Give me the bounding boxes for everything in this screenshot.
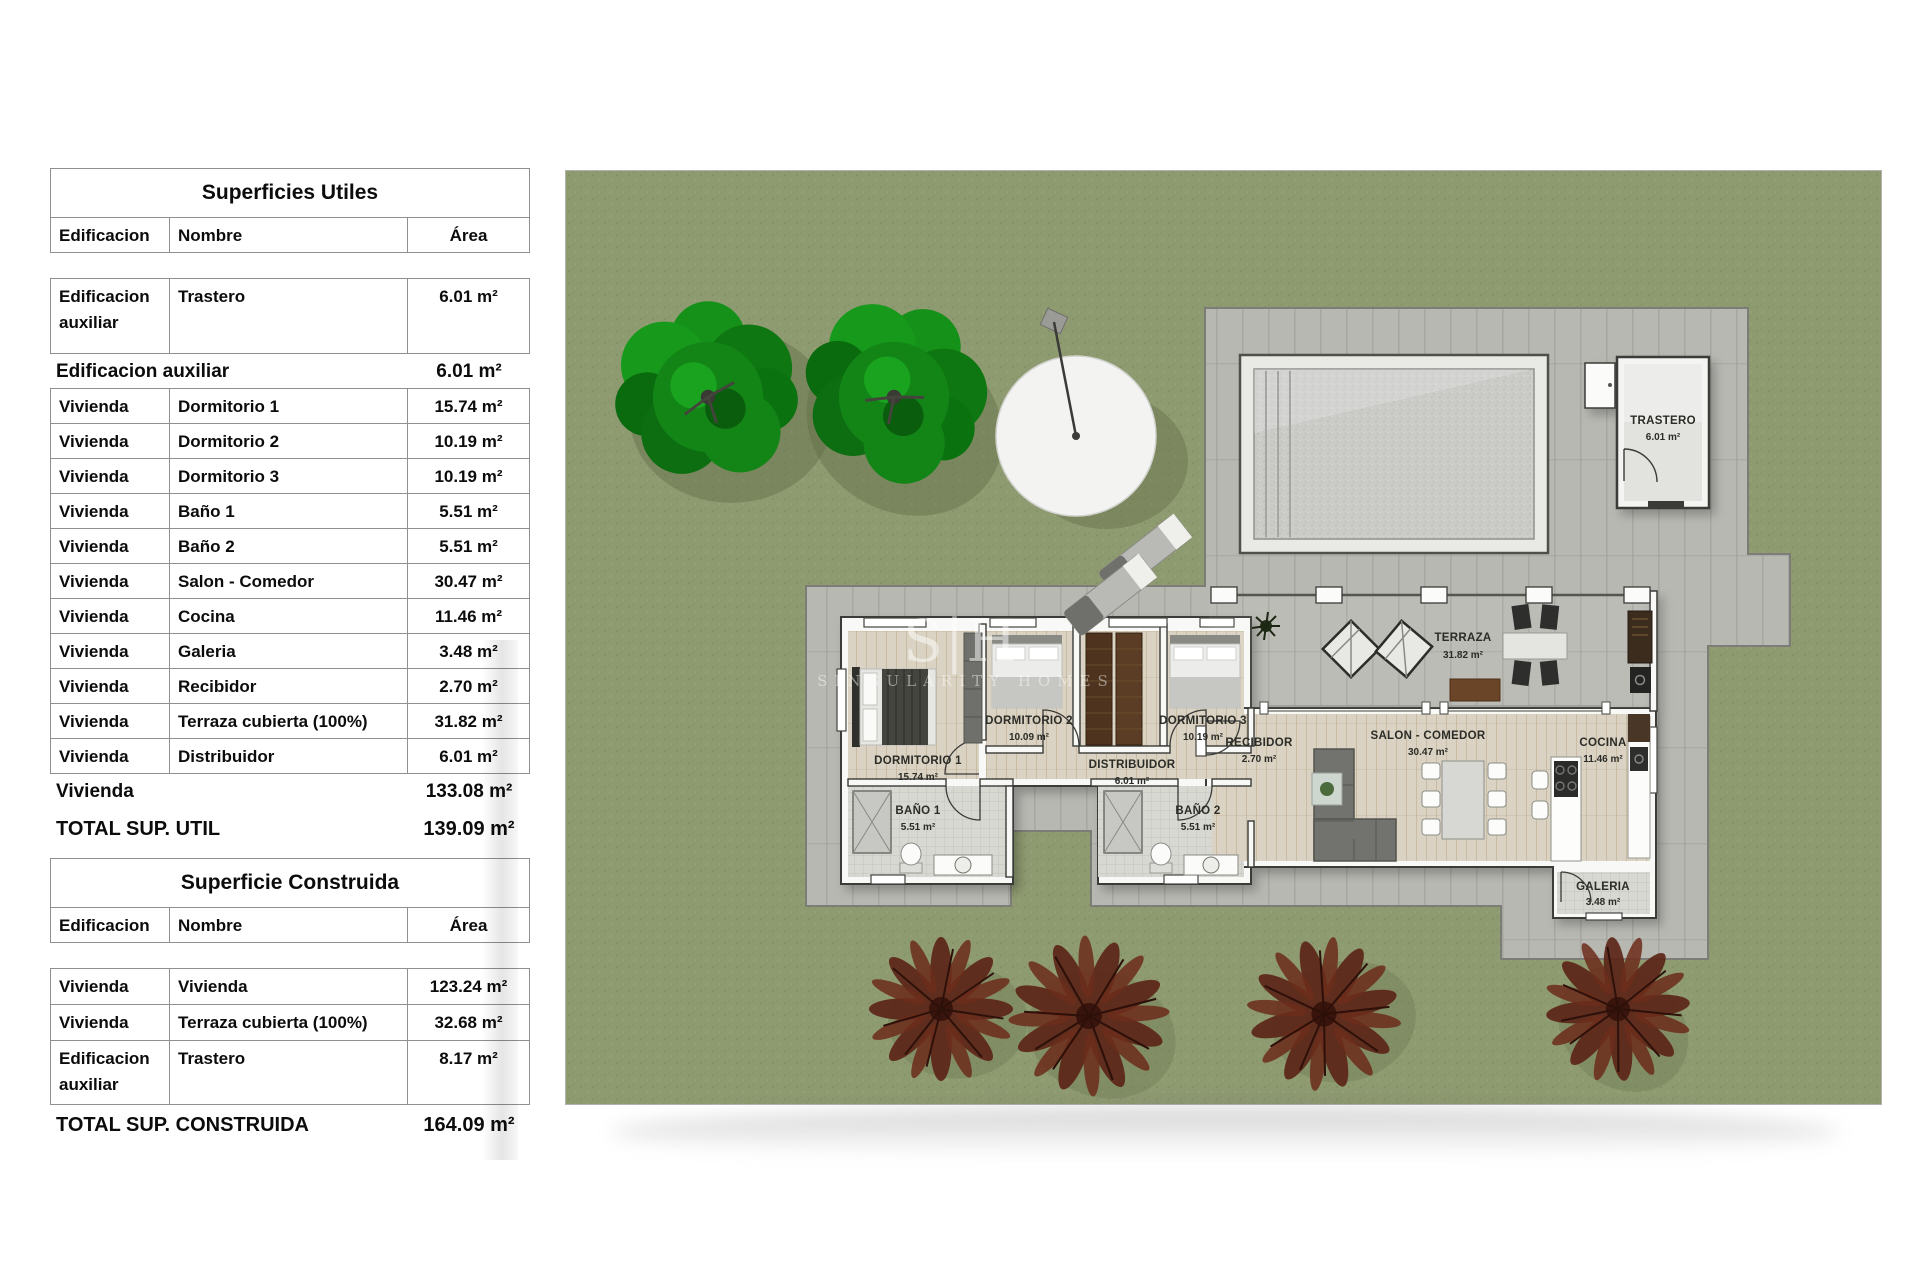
room-area: 6.01 m² [1115, 776, 1150, 787]
table-spacer [50, 943, 530, 969]
room-area: 5.51 m² [1181, 822, 1216, 833]
subtotal-label: Edificacion auxiliar [50, 361, 229, 383]
cell-edificacion: Edificacion auxiliar [51, 1041, 169, 1104]
cell-edificacion: Vivienda [51, 389, 169, 423]
table-superficies-utiles: Superficies Utiles Edificacion Nombre Ár… [50, 168, 530, 849]
room-name: DORMITORIO 3 [1159, 715, 1247, 727]
brochure-page: Superficies Utiles Edificacion Nombre Ár… [0, 0, 1920, 1280]
room-name: BAÑO 2 [1175, 804, 1220, 817]
room-area: 3.48 m² [1586, 897, 1621, 908]
cell-edificacion: Vivienda [51, 424, 169, 458]
cell-edificacion: Vivienda [51, 599, 169, 633]
table-row: Vivienda Vivienda 123.24 m² [50, 968, 530, 1005]
floor-plan-render: TRASTERO 6.01 m² [565, 170, 1882, 1105]
table-row: Vivienda Recibidor 2.70 m² [50, 668, 530, 704]
outdoor-kitchen [1628, 611, 1652, 693]
cell-nombre: Vivienda [169, 969, 407, 1004]
cell-nombre: Distribuidor [169, 739, 407, 773]
room-area: 11.46 m² [1583, 754, 1623, 765]
cell-edificacion: Vivienda [51, 969, 169, 1004]
table-row: Vivienda Dormitorio 3 10.19 m² [50, 458, 530, 494]
cell-area: 30.47 m² [407, 564, 529, 598]
total-row: TOTAL SUP. UTIL 139.09 m² [50, 809, 530, 849]
table-row: Vivienda Terraza cubierta (100%) 31.82 m… [50, 703, 530, 739]
cell-nombre: Trastero [169, 1041, 407, 1104]
cell-nombre: Dormitorio 1 [169, 389, 407, 423]
table-header-row: Edificacion Nombre Área [50, 217, 530, 253]
table-title: Superficies Utiles [50, 168, 530, 218]
cell-area: 10.19 m² [407, 459, 529, 493]
subtotal-row: Edificacion auxiliar 6.01 m² [50, 354, 530, 389]
room-area: 5.51 m² [901, 822, 936, 833]
room-name: SALON - COMEDOR [1370, 730, 1485, 742]
cell-edificacion: Edificacion auxiliar [51, 279, 169, 353]
cell-edificacion: Vivienda [51, 459, 169, 493]
col-header-nombre: Nombre [169, 908, 407, 942]
col-header-edificacion: Edificacion [51, 218, 169, 252]
cell-edificacion: Vivienda [51, 669, 169, 703]
table-row: Vivienda Baño 2 5.51 m² [50, 528, 530, 564]
room-area: 31.82 m² [1443, 650, 1484, 661]
col-header-nombre: Nombre [169, 218, 407, 252]
cell-nombre: Terraza cubierta (100%) [169, 1005, 407, 1040]
room-name: GALERIA [1576, 881, 1630, 893]
table-row: Vivienda Dormitorio 2 10.19 m² [50, 423, 530, 459]
outdoor-rug [1450, 679, 1500, 701]
room-area: 30.47 m² [1408, 747, 1449, 758]
table-row: Vivienda Baño 1 5.51 m² [50, 493, 530, 529]
cell-edificacion: Vivienda [51, 634, 169, 668]
dormitorio3-furniture [1170, 635, 1240, 708]
cell-nombre: Recibidor [169, 669, 407, 703]
col-header-edificacion: Edificacion [51, 908, 169, 942]
total-label: TOTAL SUP. UTIL [50, 818, 220, 841]
watermark-logo: S|H [903, 607, 1019, 675]
cell-edificacion: Vivienda [51, 494, 169, 528]
plan-drop-shadow [610, 1106, 1840, 1158]
room-area: 2.70 m² [1242, 754, 1277, 765]
room-name: DISTRIBUIDOR [1089, 759, 1176, 771]
table-row: Vivienda Dormitorio 1 15.74 m² [50, 388, 530, 424]
cell-area: 5.51 m² [407, 494, 529, 528]
room-area: 10.19 m² [1183, 732, 1224, 743]
room-name: DORMITORIO 2 [985, 715, 1073, 727]
subtotal-area: 6.01 m² [408, 361, 530, 383]
table-superficie-construida: Superficie Construida Edificacion Nombre… [50, 858, 530, 1145]
room-name: COCINA [1579, 737, 1626, 749]
kitchen-counter [1628, 714, 1650, 858]
page-fold-shadow [482, 640, 518, 1160]
room-name: TERRAZA [1434, 632, 1491, 644]
subtotal-row: Vivienda 133.08 m² [50, 774, 530, 809]
room-name: RECIBIDOR [1225, 737, 1293, 749]
room-name: TRASTERO [1630, 415, 1696, 427]
table-spacer [50, 253, 530, 279]
cell-area: 10.19 m² [407, 424, 529, 458]
table-row: Vivienda Galeria 3.48 m² [50, 633, 530, 669]
room-area: 6.01 m² [1646, 432, 1681, 443]
cell-nombre: Dormitorio 3 [169, 459, 407, 493]
table-row: Vivienda Salon - Comedor 30.47 m² [50, 563, 530, 599]
cell-edificacion: Vivienda [51, 704, 169, 738]
table-header-row: Edificacion Nombre Área [50, 907, 530, 943]
table-row: Vivienda Distribuidor 6.01 m² [50, 738, 530, 774]
table-row: Edificacion auxiliar Trastero 6.01 m² [50, 278, 530, 354]
table-row: Vivienda Cocina 11.46 m² [50, 598, 530, 634]
total-row: TOTAL SUP. CONSTRUIDA 164.09 m² [50, 1105, 530, 1145]
cell-nombre: Baño 1 [169, 494, 407, 528]
table-row: Vivienda Terraza cubierta (100%) 32.68 m… [50, 1004, 530, 1041]
cell-nombre: Dormitorio 2 [169, 424, 407, 458]
table-title: Superficie Construida [50, 858, 530, 908]
cell-edificacion: Vivienda [51, 564, 169, 598]
room-name: DORMITORIO 1 [874, 755, 962, 767]
cell-nombre: Salon - Comedor [169, 564, 407, 598]
cell-area: 6.01 m² [407, 279, 529, 353]
cell-edificacion: Vivienda [51, 1005, 169, 1040]
table-row: Edificacion auxiliar Trastero 8.17 m² [50, 1040, 530, 1105]
cell-edificacion: Vivienda [51, 739, 169, 773]
room-name: BAÑO 1 [895, 804, 941, 817]
watermark-name: SINGULARITY HOMES [817, 672, 1115, 690]
cell-edificacion: Vivienda [51, 529, 169, 563]
cell-nombre: Cocina [169, 599, 407, 633]
dining-set [1422, 761, 1506, 839]
col-header-area: Área [407, 218, 529, 252]
swimming-pool [1240, 355, 1548, 553]
total-label: TOTAL SUP. CONSTRUIDA [50, 1114, 309, 1137]
room-area: 10.09 m² [1009, 732, 1050, 743]
cell-nombre: Trastero [169, 279, 407, 353]
cell-nombre: Baño 2 [169, 529, 407, 563]
room-area: 15.74 m² [898, 772, 939, 783]
cell-area: 11.46 m² [407, 599, 529, 633]
subtotal-label: Vivienda [50, 781, 134, 803]
cell-area: 15.74 m² [407, 389, 529, 423]
cell-nombre: Galeria [169, 634, 407, 668]
cell-area: 5.51 m² [407, 529, 529, 563]
cell-nombre: Terraza cubierta (100%) [169, 704, 407, 738]
